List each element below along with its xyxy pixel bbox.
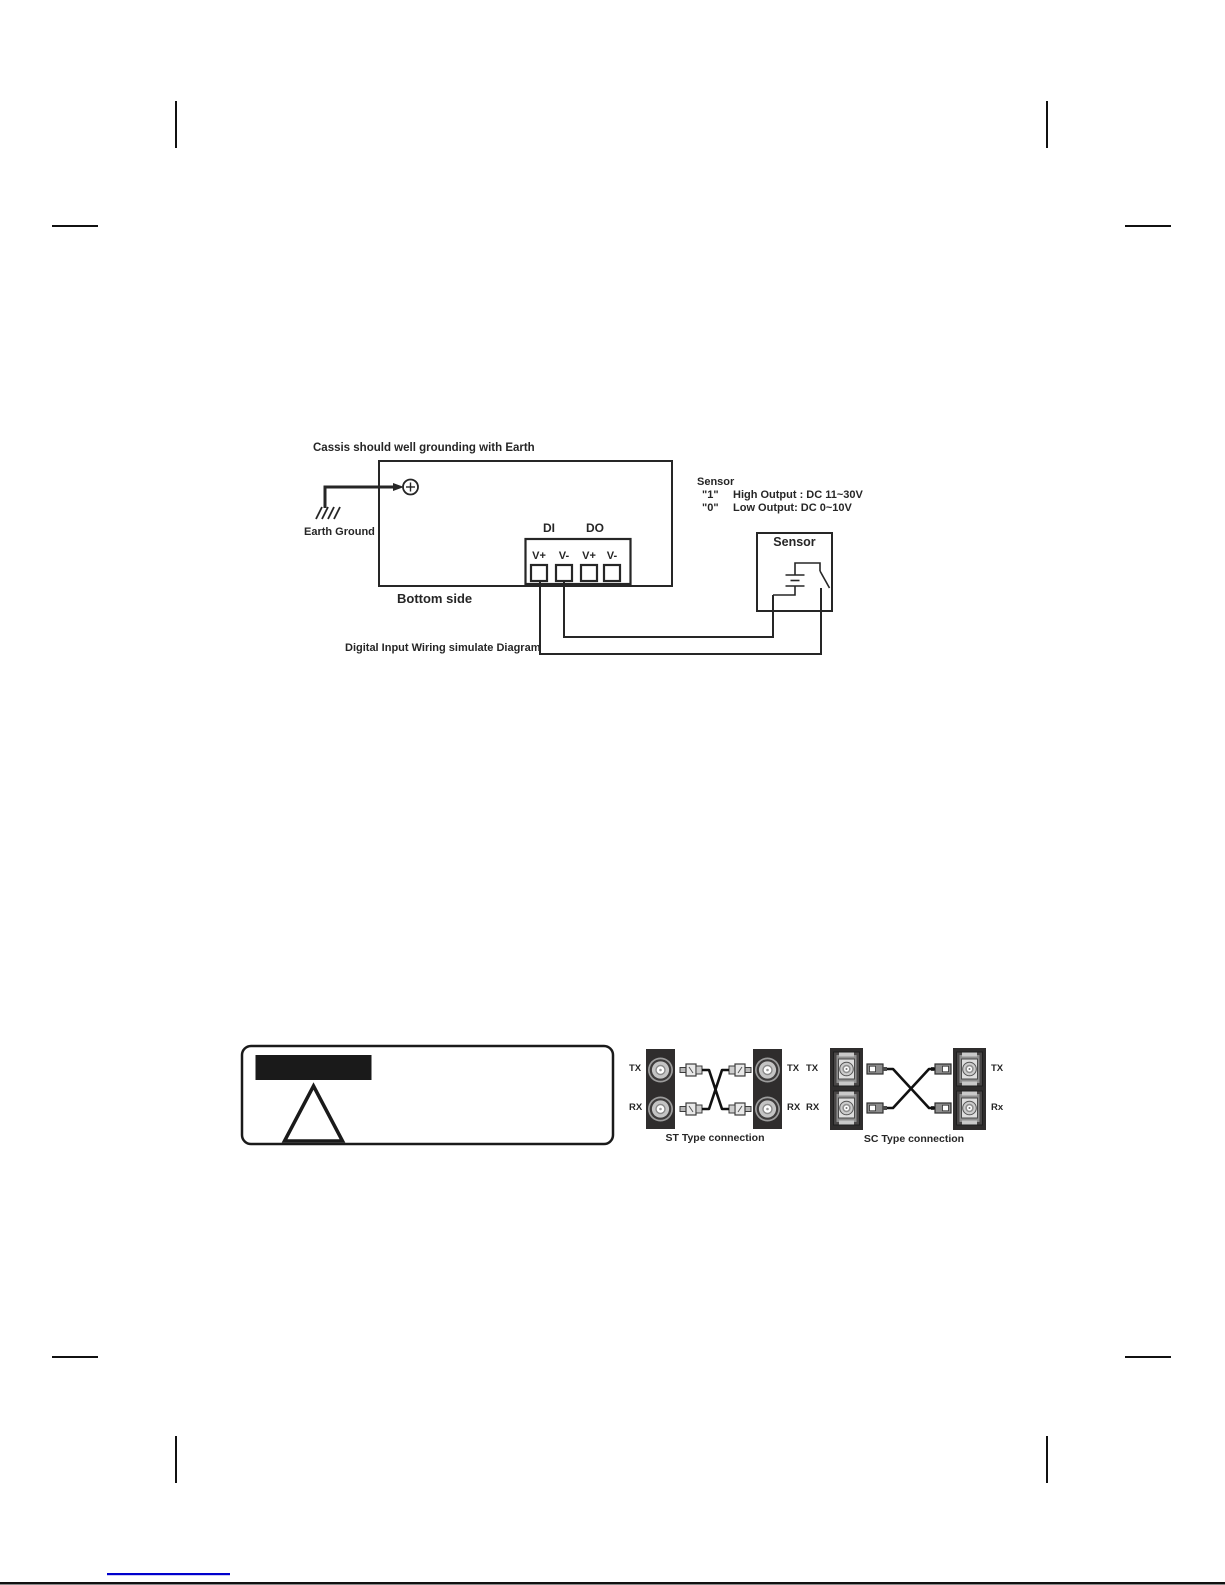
earth-ground-symbol bbox=[316, 507, 340, 519]
diagram-caption: Digital Input Wiring simulate Diagram bbox=[345, 642, 540, 655]
st-connection-diagram bbox=[646, 1049, 782, 1129]
sc-port-rx-right bbox=[957, 1091, 983, 1125]
di-vminus-wire bbox=[564, 581, 773, 637]
terminal-pin-square bbox=[556, 565, 572, 581]
earth-terminal bbox=[393, 480, 418, 495]
do-group-label: DO bbox=[582, 522, 608, 536]
st-crossover-cables bbox=[702, 1070, 729, 1109]
crop-marks bbox=[52, 101, 1171, 1483]
grounding-note: Cassis should well grounding with Earth bbox=[313, 442, 535, 455]
st-left-rx-label: RX bbox=[629, 1102, 642, 1113]
st-plug bbox=[729, 1064, 751, 1076]
sensor-box-label: Sensor bbox=[757, 535, 832, 549]
pin-label-vminus-do: V- bbox=[602, 550, 622, 562]
sc-left-rx-label: RX bbox=[806, 1102, 819, 1113]
sensor-spec-row: "1" High Output : DC 11~30V bbox=[697, 489, 863, 501]
st-connection-caption: ST Type connection bbox=[655, 1132, 775, 1144]
sc-port-tx-right bbox=[957, 1052, 983, 1086]
sc-connection-caption: SC Type connection bbox=[854, 1133, 974, 1145]
terminal-pin-square bbox=[604, 565, 620, 581]
sc-right-rx-label: Rx bbox=[991, 1102, 1003, 1113]
earth-ground-label: Earth Ground bbox=[304, 526, 375, 539]
st-port-tx-left bbox=[648, 1058, 673, 1083]
pin-label-vplus-do: V+ bbox=[579, 550, 599, 562]
diagram-artwork-layer bbox=[0, 0, 1225, 1585]
st-right-tx-label: TX bbox=[787, 1063, 799, 1074]
st-plug bbox=[680, 1064, 702, 1076]
st-port-rx-right bbox=[755, 1097, 780, 1122]
sc-connection-diagram bbox=[830, 1048, 986, 1130]
st-port-rx-left bbox=[648, 1097, 673, 1122]
st-plug bbox=[680, 1103, 702, 1115]
manual-page: Cassis should well grounding with Earth … bbox=[0, 0, 1225, 1585]
logic-level-desc: High Output : DC 11~30V bbox=[733, 489, 863, 501]
st-port-tx-right bbox=[755, 1058, 780, 1083]
st-plug bbox=[729, 1103, 751, 1115]
sc-crossover-cables bbox=[887, 1069, 935, 1108]
terminal-pin-square bbox=[581, 565, 597, 581]
st-left-tx-label: TX bbox=[629, 1063, 641, 1074]
logic-level-desc: Low Output: DC 0~10V bbox=[733, 502, 852, 514]
sensor-spec-note: Sensor "1" High Output : DC 11~30V "0" L… bbox=[697, 476, 863, 514]
pin-label-vplus-di: V+ bbox=[529, 550, 549, 562]
sensor-spec-title: Sensor bbox=[697, 476, 863, 488]
sc-right-tx-label: TX bbox=[991, 1063, 1003, 1074]
sc-port-tx-left bbox=[834, 1052, 860, 1086]
switch-blade bbox=[820, 571, 830, 588]
earth-wire bbox=[325, 487, 394, 508]
redacted-title-bar bbox=[256, 1055, 372, 1080]
logic-level: "0" bbox=[702, 502, 724, 514]
pin-label-vminus-di: V- bbox=[554, 550, 574, 562]
page-footer bbox=[0, 1573, 1225, 1585]
logic-level: "1" bbox=[702, 489, 724, 501]
st-right-rx-label: RX bbox=[787, 1102, 800, 1113]
terminal-pin-squares bbox=[531, 565, 620, 581]
warning-box bbox=[242, 1046, 613, 1144]
sensor-spec-row: "0" Low Output: DC 0~10V bbox=[697, 502, 863, 514]
terminal-pin-square bbox=[531, 565, 547, 581]
sc-left-tx-label: TX bbox=[806, 1063, 818, 1074]
di-group-label: DI bbox=[536, 522, 562, 536]
sc-plug bbox=[867, 1103, 887, 1113]
sc-plug bbox=[867, 1064, 887, 1074]
bottom-side-label: Bottom side bbox=[397, 592, 472, 607]
sc-port-rx-left bbox=[834, 1091, 860, 1125]
di-vplus-wire bbox=[540, 581, 821, 654]
bottom-rule bbox=[0, 1582, 1225, 1585]
link-underline[interactable] bbox=[107, 1573, 230, 1575]
